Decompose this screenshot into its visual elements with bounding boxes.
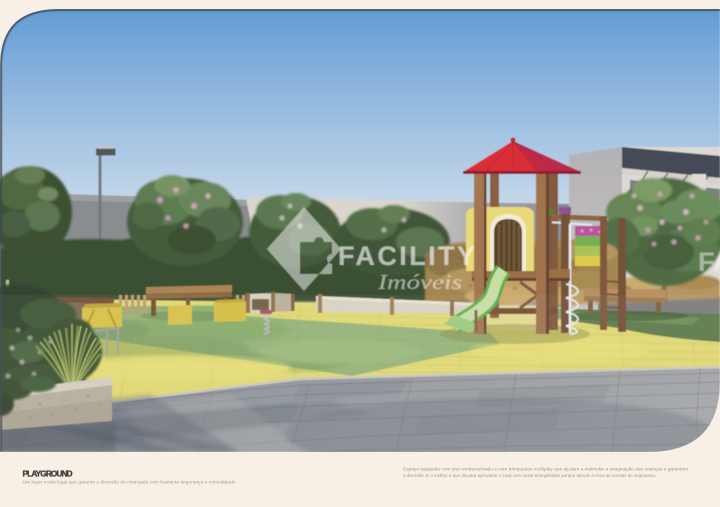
- svg-text:PLAYGROUND: PLAYGROUND: [23, 470, 74, 479]
- svg-text:Espaço equipado com piso embor: Espaço equipado com piso emborrachado e …: [403, 467, 688, 472]
- svg-text:Um lugar muito legal que garan: Um lugar muito legal que garante a diver…: [23, 480, 236, 485]
- svg-text:Imóveis: Imóveis: [377, 270, 462, 294]
- svg-text:FACILITY: FACILITY: [338, 241, 476, 271]
- svg-text:FA: FA: [698, 247, 720, 277]
- svg-text:a diversão. E o melhor é que d: a diversão. E o melhor é que dá para apr…: [403, 473, 656, 478]
